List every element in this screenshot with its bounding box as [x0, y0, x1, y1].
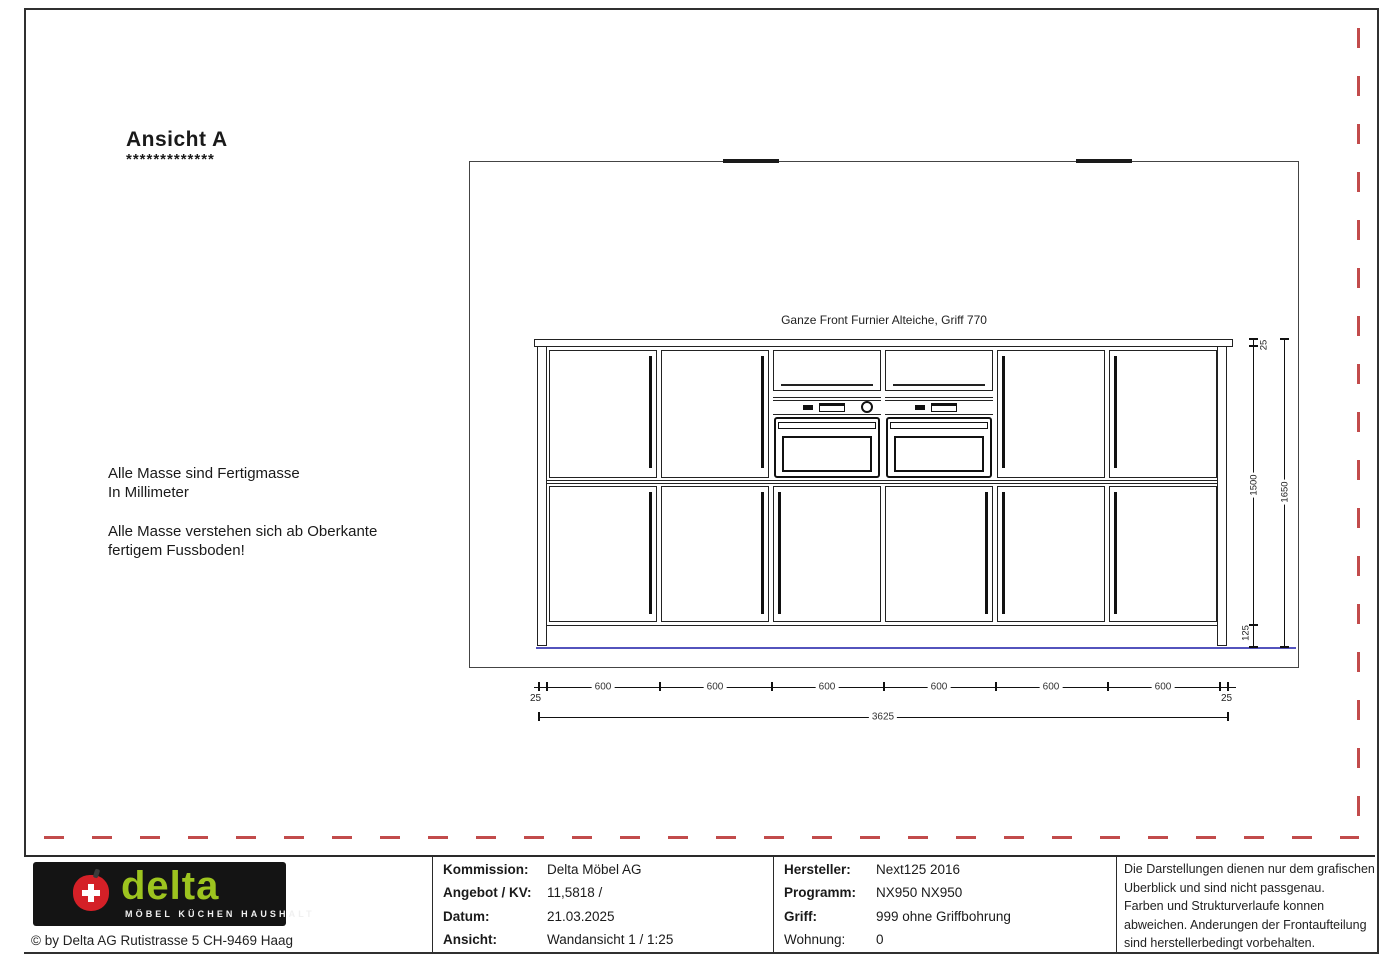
cabinet-top-rail: [534, 339, 1233, 347]
title-block-disclaimer: Die Darstellungen dienen nur dem grafisc…: [1116, 857, 1375, 952]
door-handle-groove: [778, 492, 781, 614]
oven-handle-bar: [778, 422, 876, 429]
oven-display: [819, 403, 845, 412]
cabinet-mid-rail: [547, 483, 1217, 484]
door-handle-groove: [649, 356, 652, 468]
note-line: Alle Masse sind Fertigmasse: [108, 465, 300, 482]
field-value: 999 ohne Griffbohrung: [876, 909, 1011, 924]
upper-door-5: [997, 350, 1105, 478]
door-handle-groove: [1114, 492, 1117, 614]
dim-label-segment: 600: [1040, 682, 1063, 693]
upper-door-2: [661, 350, 769, 478]
note-line: Alle Masse verstehen sich ab Oberkante: [108, 523, 377, 540]
title-block-logo-cell: delta MÖBEL KÜCHEN HAUSHALT © by Delta A…: [24, 857, 432, 952]
copyright-text: © by Delta AG Rutistrasse 5 CH-9469 Haag: [31, 933, 293, 948]
title-block: delta MÖBEL KÜCHEN HAUSHALT © by Delta A…: [24, 855, 1375, 952]
disclaimer-line: Uberblick und sind nicht passgenau.: [1124, 879, 1375, 898]
field-label: Kommission:: [443, 862, 547, 877]
disclaimer-line: Die Darstellungen dienen nur dem grafisc…: [1124, 860, 1375, 879]
dim-label-end-panel: 25: [530, 693, 541, 704]
oven-handle-bar: [890, 422, 988, 429]
cabinet-bottom-rail: [547, 625, 1217, 626]
field-value: 11,5818 /: [547, 885, 602, 900]
oven-panel-line: [773, 414, 881, 415]
door-handle-groove: [761, 356, 764, 468]
dim-tick: [538, 712, 540, 721]
floor-line: [536, 647, 1296, 649]
disclaimer-line: Farben und Strukturverlaufe konnen: [1124, 897, 1375, 916]
oven-seam: [773, 397, 881, 398]
oven-panel-line: [885, 414, 993, 415]
upper-door-6: [1109, 350, 1217, 478]
field-label: Griff:: [784, 909, 876, 924]
dim-tick: [995, 682, 997, 691]
dim-tick: [659, 682, 661, 691]
dim-line-chain: [534, 687, 1236, 688]
lower-door-6: [1109, 486, 1217, 622]
dim-label-total-height: 1650: [1280, 479, 1291, 504]
lower-door-5: [997, 486, 1105, 622]
field-value: Wandansicht 1 / 1:25: [547, 932, 673, 947]
oven-window: [782, 436, 872, 472]
red-dashed-border-right: [1357, 28, 1360, 836]
upper-door-1: [549, 350, 657, 478]
wall-marker: [1076, 159, 1132, 163]
lower-door-2: [661, 486, 769, 622]
field-label: Datum:: [443, 909, 547, 924]
dim-label-segment: 600: [816, 682, 839, 693]
oven-window: [894, 436, 984, 472]
note-line: fertigem Fussboden!: [108, 542, 245, 559]
disclaimer-line: sind herstellerbedingt vorbehalten.: [1124, 934, 1375, 953]
dim-tick: [1107, 682, 1109, 691]
field-value: Delta Möbel AG: [547, 862, 642, 877]
dim-label-segment: 600: [704, 682, 727, 693]
dim-tick: [771, 682, 773, 691]
door-handle-groove: [649, 492, 652, 614]
title-underline: *************: [126, 151, 215, 168]
field-value: Next125 2016: [876, 862, 960, 877]
dim-label-end-panel: 25: [1221, 693, 1232, 704]
dim-tick: [1219, 682, 1221, 691]
oven-seam: [885, 397, 993, 398]
dim-label-segment: 600: [592, 682, 615, 693]
door-handle-groove: [985, 492, 988, 614]
dim-tick: [883, 682, 885, 691]
red-dashed-border-bottom: [44, 836, 1359, 839]
dim-tick: [538, 682, 540, 691]
logo-tagline: MÖBEL KÜCHEN HAUSHALT: [125, 909, 315, 919]
dim-tick: [1227, 682, 1229, 691]
field-value: NX950 NX950: [876, 885, 962, 900]
dim-label-segment: 600: [928, 682, 951, 693]
lower-door-4: [885, 486, 993, 622]
cabinet-side-panel-left: [537, 346, 547, 646]
brand-wordmark: delta: [121, 864, 219, 908]
dim-label-door-height: 1500: [1249, 472, 1260, 497]
delta-logo: delta MÖBEL KÜCHEN HAUSHALT: [33, 862, 286, 926]
field-value: 21.03.2025: [547, 909, 615, 924]
field-label: Hersteller:: [784, 862, 876, 877]
dim-tick: [1249, 338, 1258, 340]
flap-groove: [781, 384, 873, 386]
oven-panel-line: [885, 400, 993, 401]
door-handle-groove: [1114, 356, 1117, 468]
door-handle-groove: [1002, 492, 1005, 614]
flap-groove: [893, 384, 985, 386]
dim-label-plinth: 125: [1241, 623, 1252, 643]
field-label: Ansicht:: [443, 932, 547, 947]
field-value: 0: [876, 932, 884, 947]
title-block-info-a: Kommission:Delta Möbel AG Angebot / KV:1…: [432, 857, 773, 952]
note-line: In Millimeter: [108, 484, 189, 501]
dim-tick: [1280, 646, 1289, 648]
front-finish-label: Ganze Front Furnier Alteiche, Griff 770: [669, 313, 1099, 327]
dim-tick: [1227, 712, 1229, 721]
page-title: Ansicht A: [126, 128, 228, 152]
drawing-sheet: { "colors": { "red_dashed_border": "#c24…: [0, 0, 1400, 958]
field-label: Wohnung:: [784, 932, 876, 947]
apple-icon: [73, 875, 109, 911]
dim-label-segment: 600: [1152, 682, 1175, 693]
dim-tick: [1280, 338, 1289, 340]
oven-button: [915, 405, 925, 410]
cabinet-mid-rail: [547, 480, 1217, 481]
dim-label-top-panel: 25: [1259, 338, 1270, 353]
wall-marker: [723, 159, 779, 163]
oven-display: [931, 403, 957, 412]
door-handle-groove: [1002, 356, 1005, 468]
cabinet-side-panel-right: [1217, 346, 1227, 646]
dim-label-total-width: 3625: [869, 712, 897, 723]
lower-door-1: [549, 486, 657, 622]
dim-tick: [1249, 345, 1258, 347]
oven-button: [803, 405, 813, 410]
title-block-info-b: Hersteller:Next125 2016 Programm:NX950 N…: [773, 857, 1116, 952]
field-label: Angebot / KV:: [443, 885, 547, 900]
door-handle-groove: [761, 492, 764, 614]
lower-door-3: [773, 486, 881, 622]
dim-tick: [1249, 646, 1258, 648]
disclaimer-line: abweichen. Anderungen der Frontaufteilun…: [1124, 916, 1375, 935]
field-label: Programm:: [784, 885, 876, 900]
dim-tick: [546, 682, 548, 691]
oven-knob: [861, 401, 873, 413]
